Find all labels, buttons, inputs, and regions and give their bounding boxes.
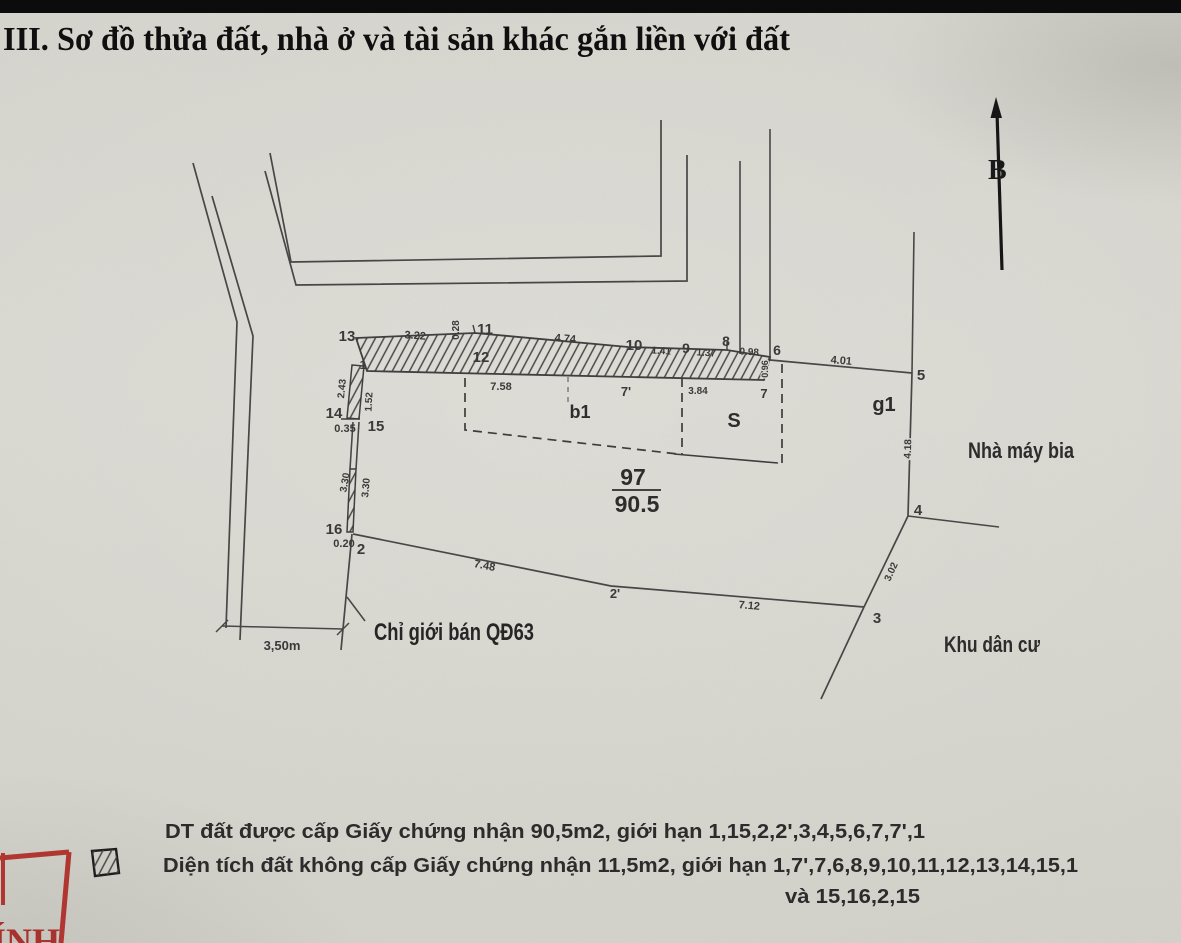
- svg-text:90.5: 90.5: [615, 491, 660, 517]
- svg-text:6: 6: [773, 342, 781, 358]
- svg-text:11: 11: [477, 321, 493, 338]
- svg-text:4: 4: [914, 502, 923, 519]
- svg-text:1.52: 1.52: [364, 391, 376, 411]
- svg-text:0.20: 0.20: [333, 538, 354, 550]
- svg-text:g1: g1: [872, 394, 895, 416]
- svg-text:0.98: 0.98: [739, 346, 760, 358]
- svg-text:8: 8: [722, 333, 730, 349]
- svg-text:3: 3: [873, 610, 881, 627]
- svg-text:7: 7: [760, 386, 767, 401]
- svg-text:9: 9: [682, 340, 690, 356]
- svg-text:Diện tích đất không cấp Giấy c: Diện tích đất không cấp Giấy chứng nhận …: [163, 855, 1078, 877]
- svg-text:97: 97: [620, 464, 646, 490]
- svg-text:16: 16: [326, 521, 343, 538]
- svg-text:4.01: 4.01: [830, 354, 852, 368]
- svg-text:14: 14: [326, 405, 343, 422]
- svg-text:S: S: [727, 410, 740, 432]
- svg-text:DT đất được cấp Giấy chứng nhậ: DT đất được cấp Giấy chứng nhận 90,5m2, …: [165, 821, 925, 843]
- svg-text:ÍNH: ÍNH: [0, 921, 60, 943]
- svg-text:2: 2: [357, 541, 365, 558]
- svg-text:4.74: 4.74: [554, 332, 577, 346]
- svg-text:Nhà máy bia: Nhà máy bia: [968, 438, 1075, 463]
- svg-text:III. Sơ đồ thửa đất, nhà ở và: III. Sơ đồ thửa đất, nhà ở và tài sản kh…: [3, 21, 791, 58]
- svg-text:10: 10: [626, 337, 643, 354]
- svg-text:và 15,16,2,15: và 15,16,2,15: [785, 886, 920, 908]
- svg-text:7.48: 7.48: [473, 558, 496, 574]
- svg-text:12: 12: [473, 349, 490, 366]
- svg-text:2.43: 2.43: [336, 378, 349, 399]
- svg-text:0.96: 0.96: [760, 360, 770, 378]
- svg-text:0.35: 0.35: [334, 423, 355, 435]
- svg-text:3.84: 3.84: [688, 386, 708, 397]
- svg-text:15: 15: [368, 418, 385, 435]
- svg-text:b1: b1: [569, 402, 590, 422]
- svg-text:Chỉ giới bán QĐ63: Chỉ giới bán QĐ63: [374, 619, 534, 646]
- svg-text:3,50m: 3,50m: [264, 638, 301, 653]
- svg-text:3.30: 3.30: [360, 477, 373, 498]
- svg-text:7.12: 7.12: [738, 599, 760, 613]
- svg-text:4.18: 4.18: [903, 439, 915, 459]
- svg-text:1.41: 1.41: [651, 345, 672, 357]
- svg-text:2': 2': [610, 586, 620, 601]
- svg-text:7.58: 7.58: [490, 381, 511, 393]
- svg-text:13: 13: [339, 328, 356, 345]
- svg-text:1.37: 1.37: [696, 347, 717, 359]
- svg-text:3.22: 3.22: [404, 329, 426, 342]
- svg-text:1: 1: [360, 358, 367, 372]
- svg-text:0.28: 0.28: [451, 320, 462, 340]
- svg-text:Khu dân cư: Khu dân cư: [944, 632, 1040, 657]
- svg-text:7': 7': [621, 384, 631, 399]
- svg-text:5: 5: [917, 367, 925, 384]
- svg-text:B: B: [988, 155, 1007, 186]
